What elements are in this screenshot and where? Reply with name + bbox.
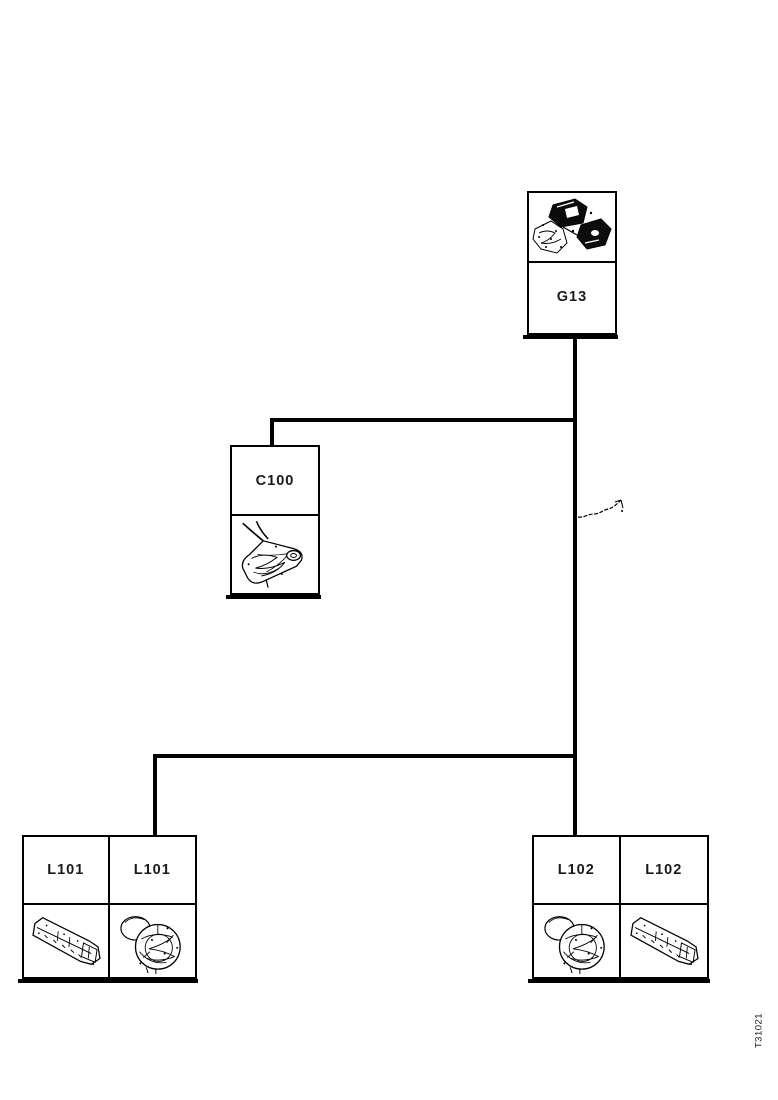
node-group-l101: L101 L101 bbox=[22, 835, 197, 979]
l102-right-image-cell bbox=[621, 905, 708, 977]
g13-label: G13 bbox=[529, 263, 615, 331]
l102-left-label: L102 bbox=[534, 837, 621, 905]
strip-connector-icon bbox=[623, 908, 705, 974]
wiring-diagram-canvas: G13 C100 L101 L101 L102 L102 bbox=[0, 0, 778, 1100]
g13-image-cell bbox=[529, 193, 615, 263]
handwritten-arrow-icon bbox=[576, 489, 628, 521]
l102-left-image-cell bbox=[534, 905, 621, 977]
wire-c100-branch-horizontal bbox=[270, 418, 577, 422]
node-c100: C100 bbox=[230, 445, 320, 595]
round-connector-icon bbox=[535, 907, 617, 975]
drawing-code: T31021 bbox=[754, 1002, 767, 1060]
node-g13: G13 bbox=[527, 191, 617, 335]
l101-left-label: L101 bbox=[24, 837, 110, 905]
wire-c100-branch-vertical bbox=[270, 418, 274, 447]
strip-connector-icon bbox=[25, 908, 107, 974]
engine-assembly-icon bbox=[529, 195, 615, 259]
l101-right-label: L101 bbox=[110, 837, 196, 905]
c100-image-cell bbox=[232, 516, 318, 591]
wire-trunk-vertical bbox=[573, 333, 577, 836]
node-group-l102: L102 L102 bbox=[532, 835, 709, 979]
round-connector-icon bbox=[111, 907, 193, 975]
l101-left-image-cell bbox=[24, 905, 110, 977]
harness-connector-icon bbox=[233, 517, 317, 590]
l102-right-label: L102 bbox=[621, 837, 708, 905]
wire-l101-branch-vertical bbox=[153, 754, 157, 837]
wire-bottom-branch-horizontal bbox=[153, 754, 577, 758]
l101-right-image-cell bbox=[110, 905, 196, 977]
c100-label: C100 bbox=[232, 447, 318, 516]
